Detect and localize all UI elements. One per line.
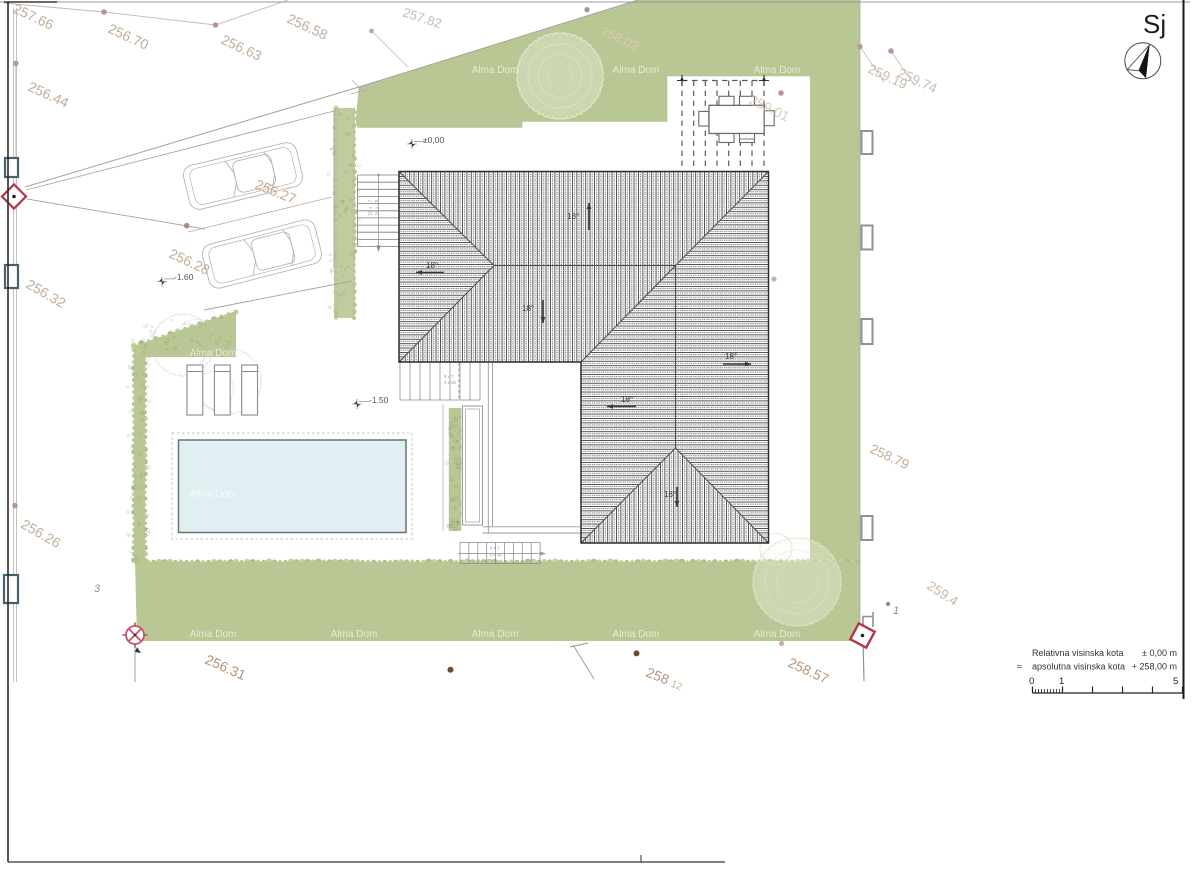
svg-text:9 x 30: 9 x 30 (444, 380, 457, 385)
svg-text:Alma Dom: Alma Dom (190, 489, 237, 500)
svg-text:18°: 18° (567, 212, 579, 221)
svg-text:Alma Dom: Alma Dom (190, 629, 237, 640)
svg-text:Sj: Sj (1143, 9, 1166, 39)
svg-text:Alma Dom: Alma Dom (754, 65, 801, 76)
svg-text:18°: 18° (621, 395, 633, 404)
svg-text:Relativna visinska kota: Relativna visinska kota (1032, 648, 1124, 658)
svg-text:Alma Dom: Alma Dom (331, 629, 378, 640)
svg-text:16 x 29: 16 x 29 (375, 199, 381, 216)
svg-text:±0,00: ±0,00 (423, 135, 444, 145)
svg-text:18°: 18° (664, 490, 676, 499)
svg-text:Alma Dom: Alma Dom (613, 65, 660, 76)
svg-text:3: 3 (94, 583, 101, 595)
svg-text:Alma Dom: Alma Dom (754, 629, 801, 640)
svg-text:1: 1 (1059, 676, 1064, 687)
svg-text:16 x 17: 16 x 17 (368, 199, 374, 216)
svg-text:Alma Dom: Alma Dom (472, 629, 519, 640)
svg-text:≈: ≈ (1017, 662, 1022, 672)
svg-text:-1.50: -1.50 (369, 395, 389, 405)
svg-text:18°: 18° (522, 304, 534, 313)
svg-text:apsolutna visinska kota: apsolutna visinska kota (1032, 662, 1125, 672)
svg-text:18°: 18° (426, 261, 438, 270)
svg-text:-1.60: -1.60 (174, 272, 194, 282)
svg-text:Alma Dom: Alma Dom (190, 348, 237, 359)
svg-text:Alma Dom: Alma Dom (613, 629, 660, 640)
svg-text:+ 258,00 m: + 258,00 m (1132, 662, 1177, 672)
svg-text:9 x 7: 9 x 7 (444, 374, 454, 379)
svg-text:Alma Dom: Alma Dom (472, 65, 519, 76)
svg-text:1: 1 (893, 605, 899, 617)
svg-text:5: 5 (1173, 676, 1178, 687)
svg-text:9 x 7: 9 x 7 (490, 546, 500, 551)
svg-text:9 x 30: 9 x 30 (490, 553, 503, 558)
svg-text:18°: 18° (725, 352, 737, 361)
svg-text:± 0,00 m: ± 0,00 m (1142, 648, 1177, 658)
svg-text:0: 0 (1029, 676, 1034, 687)
